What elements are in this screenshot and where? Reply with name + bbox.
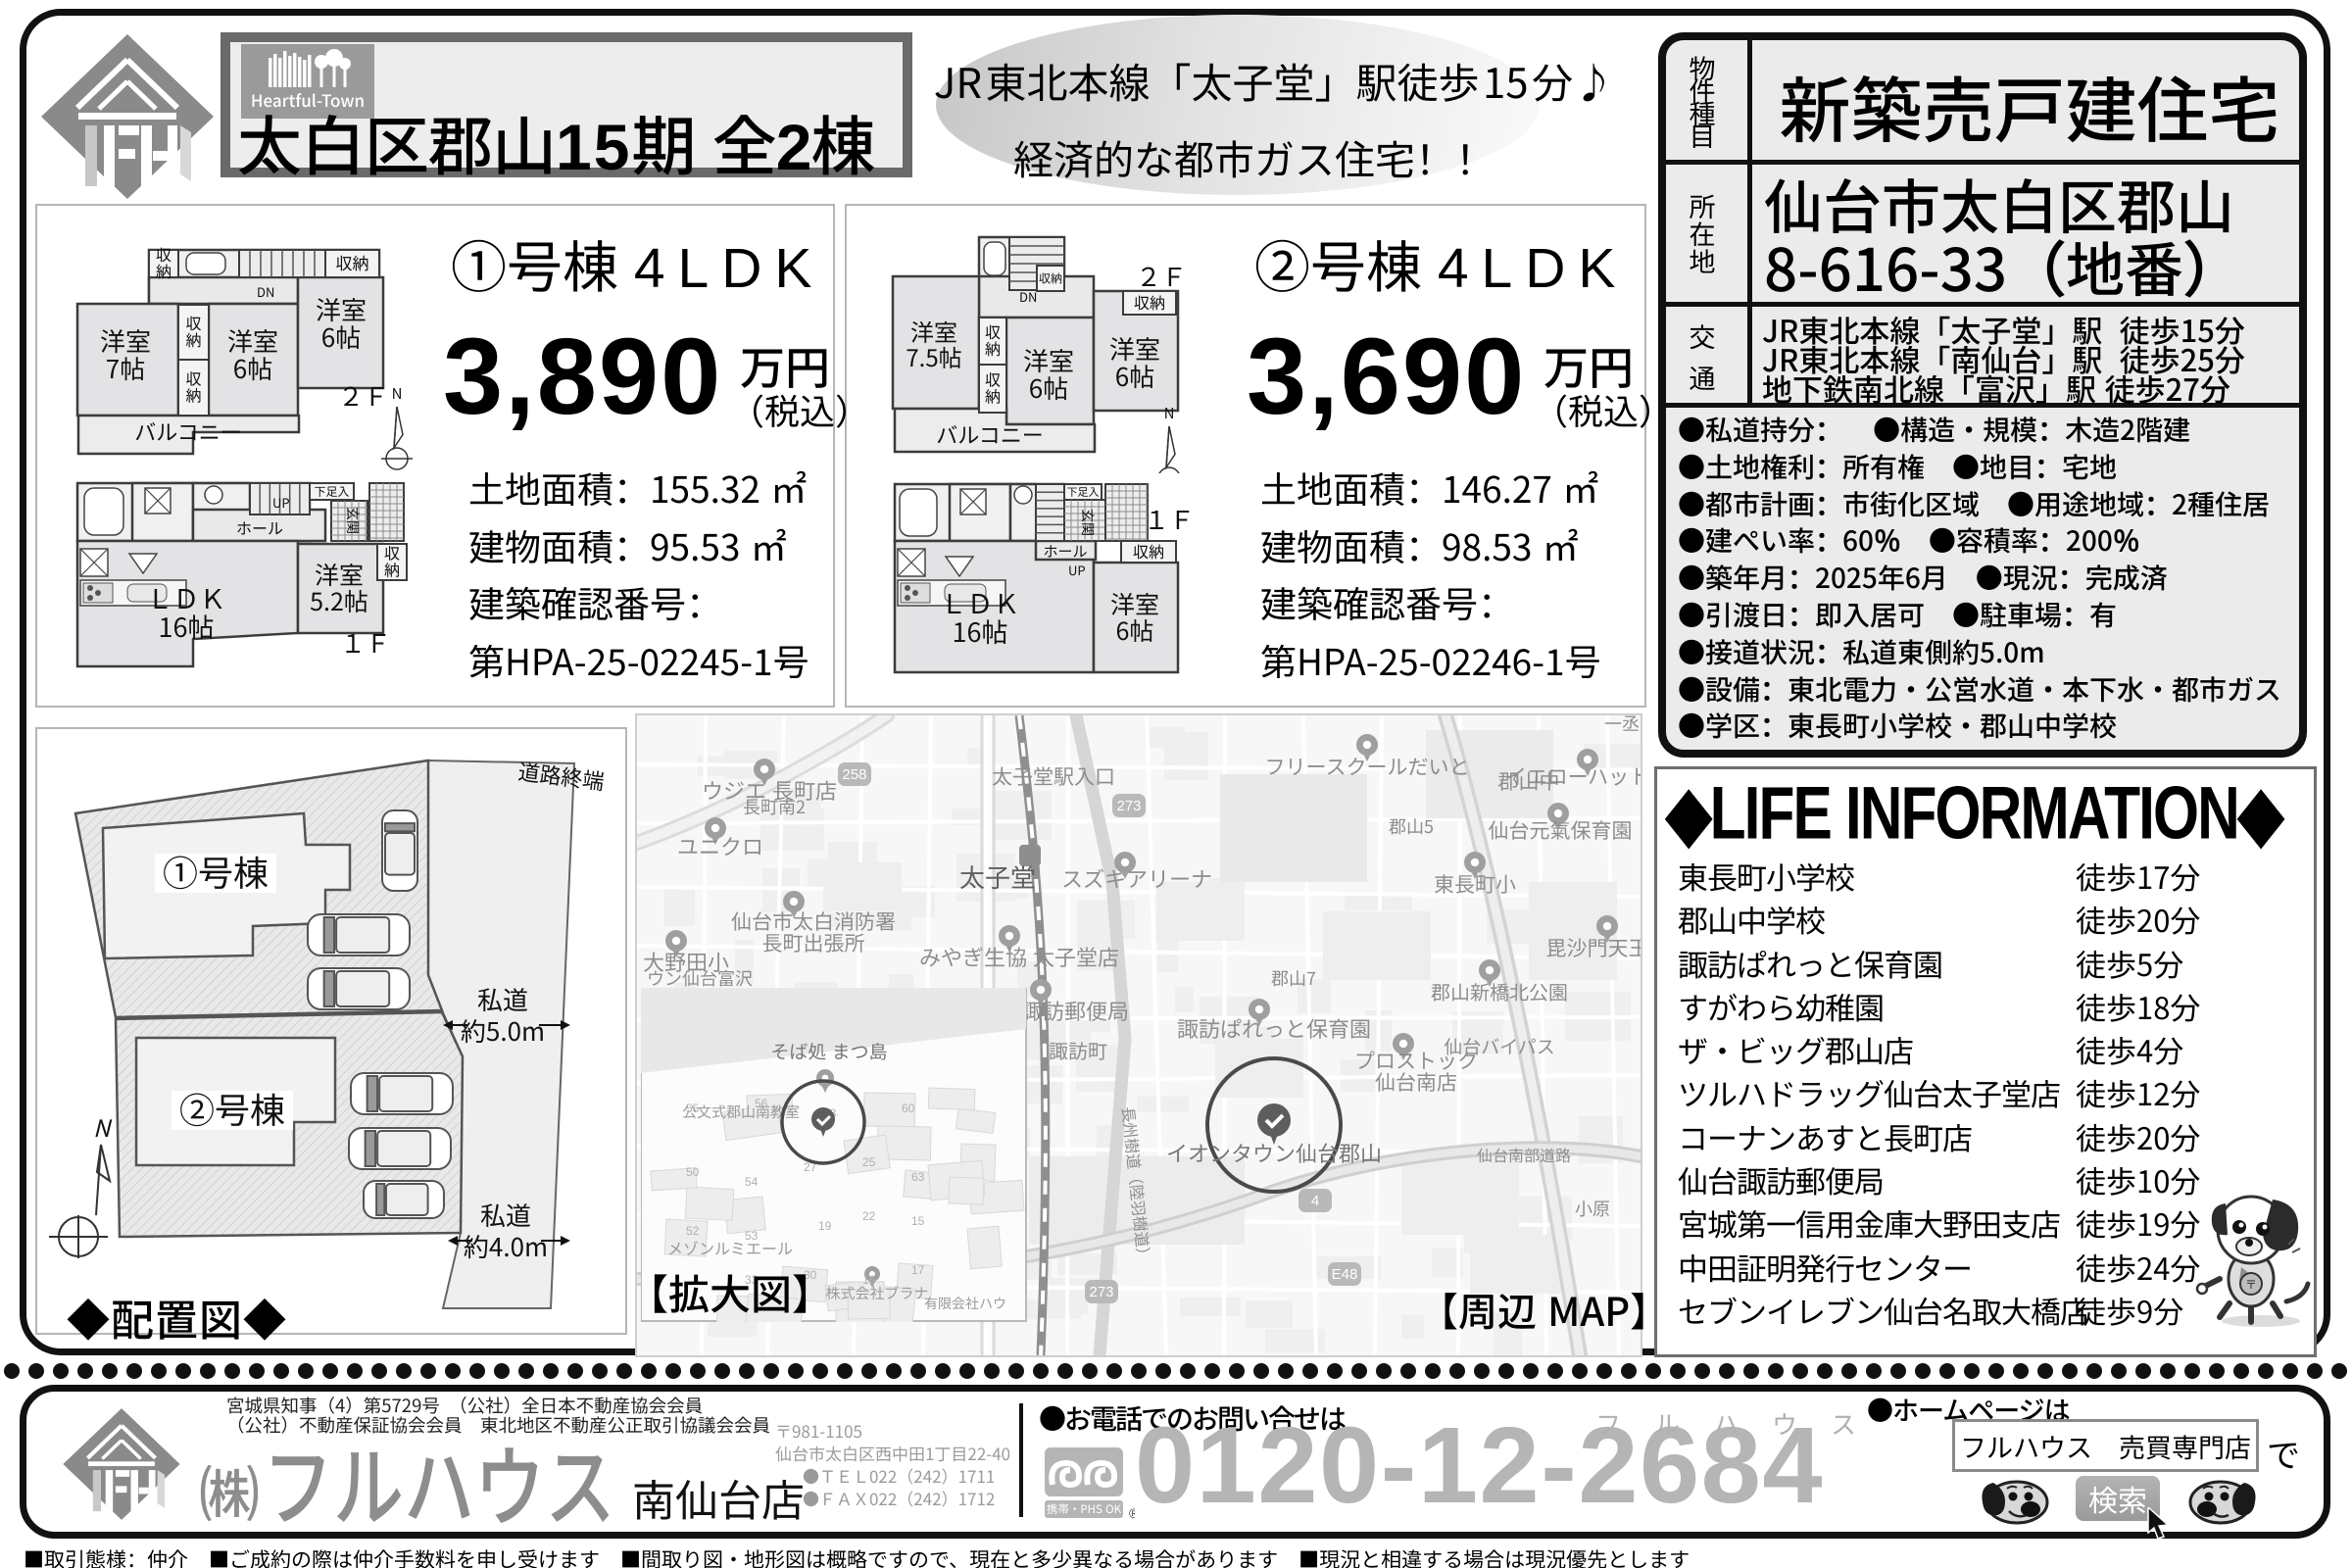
svg-text:①号棟: ①号棟 bbox=[163, 846, 269, 897]
svg-text:２Ｆ: ２Ｆ bbox=[1136, 258, 1187, 294]
svg-text:54: 54 bbox=[745, 1175, 759, 1189]
svg-text:約5.0m: 約5.0m bbox=[461, 1012, 545, 1049]
svg-text:仙台バイパス: 仙台バイパス bbox=[1444, 1033, 1555, 1059]
svg-text:N: N bbox=[1164, 403, 1175, 423]
svg-text:収納: 収納 bbox=[336, 250, 369, 274]
svg-text:22: 22 bbox=[862, 1209, 876, 1223]
svg-text:仙台元氣保育園: 仙台元氣保育園 bbox=[1489, 815, 1633, 845]
svg-text:フリースクールだいと: フリースクールだいと bbox=[1265, 752, 1470, 781]
svg-text:毘沙門天王: 毘沙門天王 bbox=[1546, 933, 1641, 962]
svg-text:273: 273 bbox=[1116, 798, 1141, 814]
svg-text:収納: 収納 bbox=[185, 311, 201, 351]
svg-text:１Ｆ: １Ｆ bbox=[1144, 501, 1191, 537]
svg-text:6帖: 6帖 bbox=[1115, 358, 1154, 394]
svg-text:一丞: 一丞 bbox=[1604, 715, 1640, 736]
svg-text:〒: 〒 bbox=[2245, 1276, 2257, 1293]
svg-text:仙台南店: 仙台南店 bbox=[1375, 1067, 1457, 1097]
svg-text:株式会社ブラナ: 株式会社ブラナ bbox=[825, 1283, 928, 1303]
svg-text:長町南2: 長町南2 bbox=[743, 794, 806, 819]
svg-text:273: 273 bbox=[1089, 1284, 1113, 1300]
svg-text:6帖: 6帖 bbox=[1029, 369, 1068, 406]
svg-text:ホール: ホール bbox=[1043, 541, 1087, 562]
svg-text:E48: E48 bbox=[1332, 1266, 1358, 1283]
svg-text:258: 258 bbox=[842, 766, 866, 783]
svg-text:UP: UP bbox=[272, 493, 290, 512]
svg-text:収納: 収納 bbox=[156, 242, 171, 282]
svg-text:太子堂駅入口: 太子堂駅入口 bbox=[992, 761, 1115, 791]
svg-text:7.5帖: 7.5帖 bbox=[906, 339, 961, 373]
svg-text:7帖: 7帖 bbox=[106, 350, 145, 386]
svg-text:収納: 収納 bbox=[985, 367, 1001, 408]
svg-text:玄関: 玄関 bbox=[1078, 509, 1098, 536]
svg-text:16帖: 16帖 bbox=[159, 607, 215, 645]
svg-text:バルコニー: バルコニー bbox=[134, 416, 242, 447]
svg-text:UP: UP bbox=[1068, 561, 1086, 579]
svg-text:玄関: 玄関 bbox=[343, 507, 363, 534]
svg-text:6帖: 6帖 bbox=[321, 318, 361, 355]
svg-text:郡山5: 郡山5 bbox=[1389, 813, 1434, 839]
svg-text:収納: 収納 bbox=[185, 367, 201, 407]
svg-text:6帖: 6帖 bbox=[233, 350, 272, 386]
svg-text:諏訪ぱれっと保育園: 諏訪ぱれっと保育園 bbox=[1177, 1012, 1371, 1044]
svg-text:有限会社ハウ: 有限会社ハウ bbox=[924, 1294, 1006, 1313]
svg-text:郡山7: 郡山7 bbox=[1271, 965, 1316, 991]
svg-text:15: 15 bbox=[911, 1214, 925, 1228]
svg-text:DN: DN bbox=[257, 282, 274, 301]
svg-text:DN: DN bbox=[1019, 287, 1037, 306]
svg-text:郡山新橋北公園: 郡山新橋北公園 bbox=[1431, 977, 1568, 1005]
svg-text:N: N bbox=[392, 383, 403, 404]
svg-text:16: 16 bbox=[862, 1273, 876, 1287]
svg-text:50: 50 bbox=[686, 1165, 700, 1179]
svg-text:携帯・PHS OK: 携帯・PHS OK bbox=[1047, 1501, 1122, 1517]
svg-text:太子堂: 太子堂 bbox=[959, 858, 1036, 895]
svg-text:１Ｆ: １Ｆ bbox=[340, 624, 391, 661]
svg-text:19: 19 bbox=[818, 1219, 832, 1233]
svg-text:バルコニー: バルコニー bbox=[936, 418, 1044, 450]
svg-text:収納: 収納 bbox=[1039, 269, 1062, 286]
svg-text:17: 17 bbox=[911, 1263, 925, 1277]
svg-text:55: 55 bbox=[686, 1102, 700, 1115]
svg-text:２Ｆ: ２Ｆ bbox=[338, 377, 389, 414]
svg-text:仙台南部道路: 仙台南部道路 bbox=[1477, 1143, 1571, 1166]
svg-text:52: 52 bbox=[686, 1224, 700, 1238]
svg-text:下足入: 下足入 bbox=[314, 483, 349, 500]
svg-text:6帖: 6帖 bbox=[1116, 612, 1154, 648]
svg-text:イオンタウン仙台郡山: イオンタウン仙台郡山 bbox=[1166, 1137, 1382, 1168]
svg-text:収納: 収納 bbox=[384, 541, 400, 581]
svg-text:25: 25 bbox=[862, 1155, 876, 1169]
svg-text:収納: 収納 bbox=[1133, 539, 1164, 563]
svg-text:ユニクロ: ユニクロ bbox=[677, 830, 763, 861]
svg-text:N: N bbox=[93, 1109, 113, 1144]
svg-text:諏訪町: 諏訪町 bbox=[1049, 1036, 1107, 1064]
svg-text:郡山中: 郡山中 bbox=[1498, 766, 1560, 796]
svg-text:約4.0m: 約4.0m bbox=[464, 1228, 548, 1264]
svg-text:東長町小: 東長町小 bbox=[1434, 869, 1516, 899]
svg-text:53: 53 bbox=[745, 1229, 759, 1243]
svg-text:4: 4 bbox=[1311, 1193, 1319, 1209]
svg-text:5.2帖: 5.2帖 bbox=[310, 583, 368, 618]
svg-text:②号棟: ②号棟 bbox=[179, 1083, 285, 1134]
svg-text:63: 63 bbox=[911, 1170, 925, 1184]
svg-text:ホール: ホール bbox=[236, 515, 283, 539]
svg-text:メゾンルミエール: メゾンルミエール bbox=[667, 1236, 793, 1259]
svg-text:長町出張所: 長町出張所 bbox=[762, 928, 865, 957]
svg-text:60: 60 bbox=[902, 1102, 915, 1115]
svg-text:下足入: 下足入 bbox=[1067, 484, 1100, 500]
svg-text:みやぎ生協 太子堂店: みやぎ生協 太子堂店 bbox=[919, 941, 1119, 972]
svg-text:スズキアリーナ: スズキアリーナ bbox=[1061, 862, 1212, 894]
svg-text:収納: 収納 bbox=[985, 319, 1001, 360]
svg-text:56: 56 bbox=[755, 1097, 768, 1110]
svg-text:16帖: 16帖 bbox=[953, 612, 1008, 650]
svg-text:小原: 小原 bbox=[1575, 1196, 1610, 1221]
svg-text:そば処 まつ島: そば処 まつ島 bbox=[770, 1038, 887, 1064]
